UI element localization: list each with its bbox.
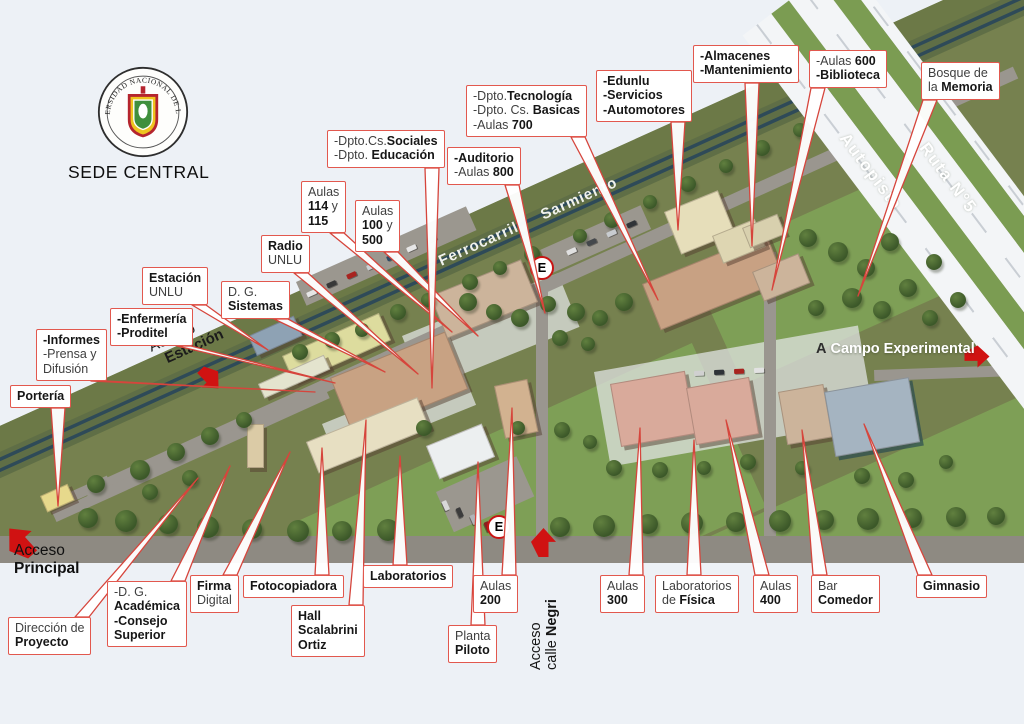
- label-aulas-100-500: Aulas100 y500: [355, 200, 400, 252]
- label-line: Aulas: [480, 579, 511, 593]
- label-line: -Dpto.Tecnología: [473, 89, 580, 103]
- university-seal-logo: UNIVERSIDAD NACIONAL DE LUJÁN: [97, 66, 189, 158]
- label-aulas-400: Aulas400: [753, 575, 798, 613]
- label-aulas-300: Aulas300: [600, 575, 645, 613]
- label-line: Bar: [818, 579, 873, 593]
- label-porteria: Portería: [10, 385, 71, 408]
- label-bar-comedor: BarComedor: [811, 575, 880, 613]
- label-line: Aulas: [362, 204, 393, 218]
- label-firma-digital: FirmaDigital: [190, 575, 239, 613]
- label-line: Superior: [114, 628, 180, 642]
- label-line: Bosque de: [928, 66, 993, 80]
- label-direccion-proyecto: Dirección deProyecto: [8, 617, 91, 655]
- label-line: Laboratorios: [662, 579, 732, 593]
- label-dg-sistemas: D. G.Sistemas: [221, 281, 290, 319]
- label-line: Aulas: [607, 579, 638, 593]
- label-line: -Enfermería: [117, 312, 186, 326]
- label-line: Digital: [197, 593, 232, 607]
- label-line: Portería: [17, 389, 64, 403]
- label-line: -Edunlu: [603, 74, 685, 88]
- label-bosque-memoria: Bosque dela Memoria: [921, 62, 1000, 100]
- label-line: -Automotores: [603, 103, 685, 117]
- label-line: -D. G.: [114, 585, 180, 599]
- label-line: Ortiz: [298, 638, 358, 652]
- label-line: 400: [760, 593, 791, 607]
- label-aulas-114-115: Aulas114 y115: [301, 181, 346, 233]
- label-line: -Informes: [43, 333, 100, 347]
- label-line: de Física: [662, 593, 732, 607]
- label-line: Firma: [197, 579, 232, 593]
- label-enfermeria: -Enfermería-Proditel: [110, 308, 193, 346]
- label-aulas-200: Aulas200: [473, 575, 518, 613]
- label-line: -Dpto. Cs. Basicas: [473, 103, 580, 117]
- label-line: Piloto: [455, 643, 490, 657]
- label-line: Estación: [149, 271, 201, 285]
- label-line: -Aulas 800: [454, 165, 514, 179]
- label-line: 300: [607, 593, 638, 607]
- label-line: 114 y: [308, 199, 339, 213]
- label-line: -Consejo: [114, 614, 180, 628]
- label-estacion-unlu: EstaciónUNLU: [142, 267, 208, 305]
- label-line: -Servicios: [603, 88, 685, 102]
- label-laboratorios: Laboratorios: [363, 565, 453, 588]
- label-line: 200: [480, 593, 511, 607]
- label-line: -Biblioteca: [816, 68, 880, 82]
- label-line: Scalabrini: [298, 623, 358, 637]
- label-line: -Aulas 700: [473, 118, 580, 132]
- label-informes: -Informes-Prensa yDifusión: [36, 329, 107, 381]
- label-line: Planta: [455, 629, 490, 643]
- label-line: -Auditorio: [454, 151, 514, 165]
- label-gimnasio: Gimnasio: [916, 575, 987, 598]
- label-line: Comedor: [818, 593, 873, 607]
- label-line: 115: [308, 214, 339, 228]
- label-line: D. G.: [228, 285, 283, 299]
- label-line: Proyecto: [15, 635, 84, 649]
- label-radio-unlu: RadioUNLU: [261, 235, 310, 273]
- label-planta-piloto: PlantaPiloto: [448, 625, 497, 663]
- label-line: Académica: [114, 599, 180, 613]
- label-dg-academica: -D. G.Académica-ConsejoSuperior: [107, 581, 187, 647]
- label-line: la Memoria: [928, 80, 993, 94]
- campus-map-page: AutopistaRuta N°5EE FerrocarrilSarmiento…: [0, 0, 1024, 724]
- label-aulas-600-biblioteca: -Aulas 600-Biblioteca: [809, 50, 887, 88]
- label-line: -Almacenes: [700, 49, 792, 63]
- label-line: Gimnasio: [923, 579, 980, 593]
- label-line: Sistemas: [228, 299, 283, 313]
- label-edunlu: -Edunlu-Servicios-Automotores: [596, 70, 692, 122]
- label-line: -Prensa y: [43, 347, 100, 361]
- label-auditorio-800: -Auditorio-Aulas 800: [447, 147, 521, 185]
- label-line: -Dpto.Cs.Sociales: [334, 134, 438, 148]
- label-line: Aulas: [760, 579, 791, 593]
- label-line: Difusión: [43, 362, 100, 376]
- label-line: 100 y: [362, 218, 393, 232]
- label-line: 500: [362, 233, 393, 247]
- label-line: Hall: [298, 609, 358, 623]
- label-dpto-tecnologia: -Dpto.Tecnología-Dpto. Cs. Basicas-Aulas…: [466, 85, 587, 137]
- label-line: Dirección de: [15, 621, 84, 635]
- label-almacenes: -Almacenes-Mantenimiento: [693, 45, 799, 83]
- label-line: Aulas: [308, 185, 339, 199]
- label-line: -Proditel: [117, 326, 186, 340]
- label-dpto-cs-sociales: -Dpto.Cs.Sociales-Dpto. Educación: [327, 130, 445, 168]
- label-line: -Dpto. Educación: [334, 148, 438, 162]
- label-line: Laboratorios: [370, 569, 446, 583]
- label-line: Fotocopiadora: [250, 579, 337, 593]
- label-line: -Aulas 600: [816, 54, 880, 68]
- label-line: UNLU: [268, 253, 303, 267]
- page-title: SEDE CENTRAL: [68, 162, 209, 183]
- label-fotocopiadora: Fotocopiadora: [243, 575, 344, 598]
- label-hall-scalabrini: HallScalabriniOrtiz: [291, 605, 365, 657]
- label-line: -Mantenimiento: [700, 63, 792, 77]
- label-line: Radio: [268, 239, 303, 253]
- label-laboratorios-fisica: Laboratoriosde Física: [655, 575, 739, 613]
- label-line: UNLU: [149, 285, 201, 299]
